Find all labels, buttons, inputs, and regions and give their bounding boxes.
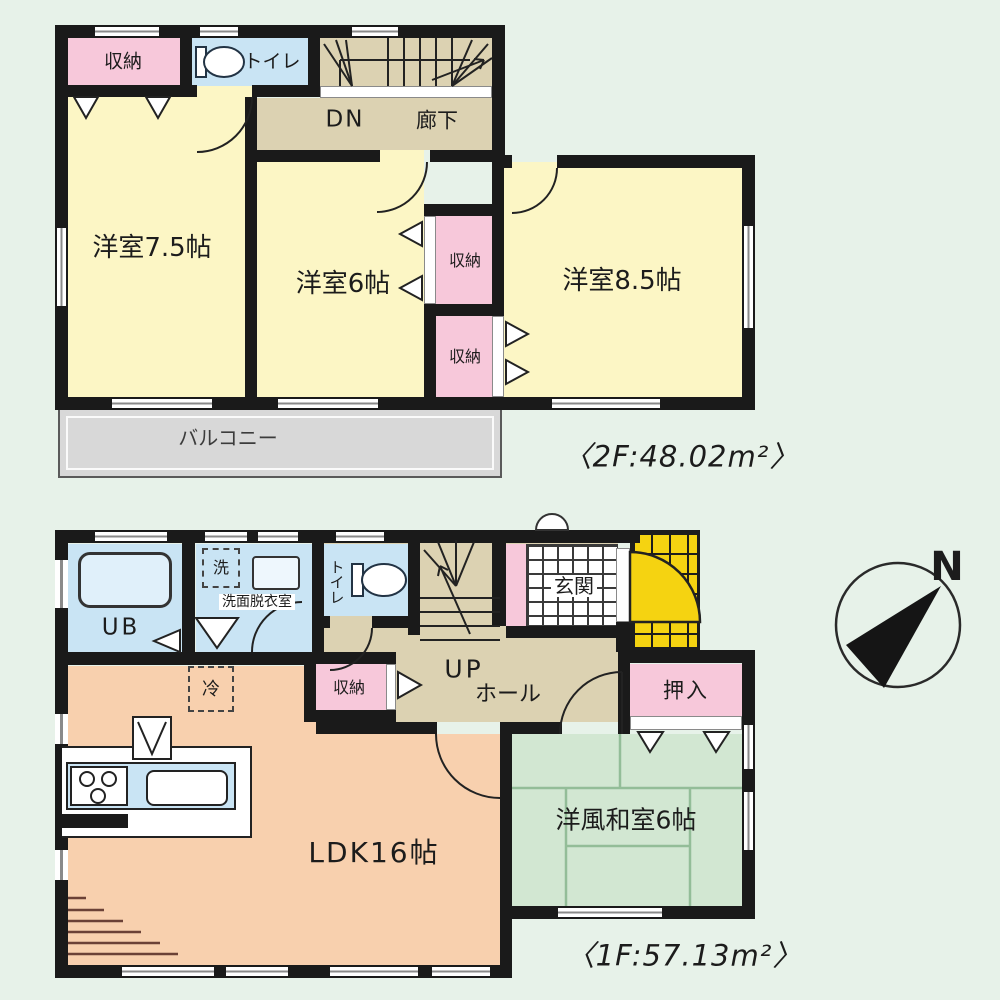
wall xyxy=(430,150,492,162)
room-label-closet-mid-upper: 収納 xyxy=(449,253,481,269)
washer-label: 洗 xyxy=(213,560,229,576)
balcony xyxy=(58,408,502,478)
floor2-area-label: 〈2F:48.02m²〉 xyxy=(563,443,800,472)
window xyxy=(122,967,214,976)
window xyxy=(330,967,418,976)
room-label-oshiire: 押入 xyxy=(663,681,709,702)
stairs-down-label: DN xyxy=(326,109,365,132)
entrance-side-strip xyxy=(506,544,526,626)
window xyxy=(558,908,662,917)
wall xyxy=(492,530,506,626)
room-label-toilet-2f: トイレ xyxy=(243,53,300,72)
wall xyxy=(245,150,380,162)
wall xyxy=(316,652,396,664)
room-label-toilet-1f: トイレ xyxy=(329,560,344,605)
wall xyxy=(304,652,316,722)
stairs-up-label: UP xyxy=(444,657,483,682)
wall xyxy=(372,616,420,628)
room-label-western-6: 洋室6帖 xyxy=(296,271,391,297)
room-label-closet-1f: 収納 xyxy=(333,680,365,696)
entrance-porch xyxy=(630,530,700,650)
window xyxy=(744,792,753,850)
north-label: N xyxy=(930,547,963,587)
closet-sliding-door xyxy=(386,664,396,710)
window xyxy=(200,27,238,36)
room-label-unit-bath: UB xyxy=(102,617,141,640)
wall xyxy=(618,650,755,663)
window xyxy=(258,532,298,541)
window xyxy=(112,399,212,408)
wall xyxy=(424,316,436,397)
wall xyxy=(492,25,505,155)
room-label-hallway: 廊下 xyxy=(416,111,458,132)
wall xyxy=(182,537,195,652)
wall xyxy=(312,616,330,628)
fridge-label: 冷 xyxy=(202,681,220,699)
wall xyxy=(500,722,562,734)
washbasin xyxy=(252,556,300,590)
room-label-balcony: バルコニー xyxy=(178,428,278,448)
floor1-area-label: 〈1F:57.13m²〉 xyxy=(566,942,803,971)
wall xyxy=(316,710,396,722)
room-label-western-7-5: 洋室7.5帖 xyxy=(92,235,211,261)
wall xyxy=(62,85,197,97)
oshiire-sliding-door xyxy=(630,716,742,730)
front-door-opening xyxy=(616,548,630,622)
room-label-closet-mid-lower: 収納 xyxy=(449,349,481,365)
wall xyxy=(500,722,512,978)
bathtub xyxy=(78,552,172,608)
wall xyxy=(557,155,755,168)
room-label-entrance: 玄関 xyxy=(551,575,597,597)
window xyxy=(744,725,753,769)
wall xyxy=(424,304,504,316)
wall xyxy=(245,97,257,397)
room-label-washroom: 洗面脱衣室 xyxy=(219,594,295,610)
floor-plan-canvas: 収納 トイレ DN 廊下 洋室7.5帖 洋室6帖 洋室8.5帖 収納 収納 バル… xyxy=(0,0,1000,1000)
window xyxy=(552,399,660,408)
window xyxy=(278,399,378,408)
wall xyxy=(492,162,504,204)
vent-window xyxy=(55,850,68,880)
window xyxy=(226,967,288,976)
sink-symbol xyxy=(132,716,172,760)
window xyxy=(432,967,490,976)
counter-cabinet xyxy=(62,814,128,828)
closet-sliding-door xyxy=(424,216,436,304)
wall xyxy=(506,626,630,638)
wall xyxy=(492,204,504,304)
window xyxy=(336,532,384,541)
vent-window xyxy=(55,714,68,744)
window xyxy=(95,532,167,541)
window xyxy=(205,532,247,541)
window xyxy=(55,560,68,608)
closet-sliding-door xyxy=(492,316,504,397)
wall xyxy=(312,530,324,652)
room-label-hall: ホール xyxy=(475,684,541,706)
kitchen-sink xyxy=(146,770,228,806)
room-label-ldk: LDK16帖 xyxy=(308,839,439,867)
wall xyxy=(618,650,630,734)
window xyxy=(744,226,753,328)
wall xyxy=(252,85,320,97)
wall xyxy=(55,652,316,665)
wall xyxy=(55,25,68,410)
room-label-japanese-room: 洋風和室6帖 xyxy=(556,808,697,833)
window xyxy=(95,27,159,36)
stair-landing-strip xyxy=(320,86,492,98)
wall xyxy=(180,32,192,85)
wall xyxy=(308,32,320,85)
wall xyxy=(316,722,437,734)
stairwell-2f xyxy=(320,38,492,86)
stove xyxy=(70,766,128,806)
wall xyxy=(616,622,630,652)
room-label-western-8-5: 洋室8.5帖 xyxy=(562,268,681,294)
room-label-closet-2f: 収納 xyxy=(104,53,142,72)
window xyxy=(57,228,66,306)
balcony-inner-line xyxy=(66,416,494,470)
window xyxy=(352,27,398,36)
wall xyxy=(742,650,755,919)
